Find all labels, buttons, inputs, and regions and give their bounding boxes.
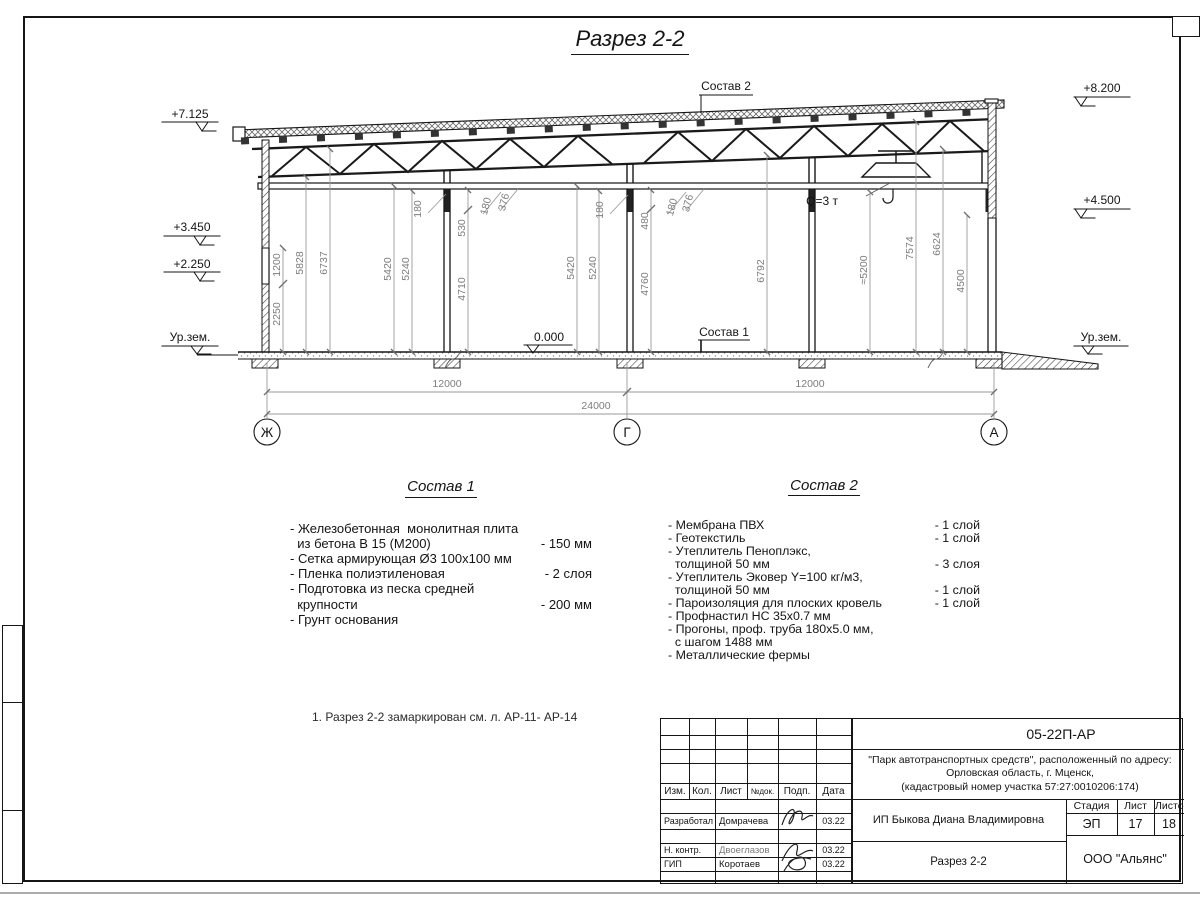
tb-organization: ООО "Альянс" — [1066, 835, 1184, 883]
tb-list-label: Лист — [1117, 799, 1154, 813]
svg-text:7574: 7574 — [904, 236, 916, 260]
tb-col-ndok: №док. — [747, 783, 778, 799]
drawing-sheet: Разрез 2-2 — [0, 0, 1200, 900]
material-item: - Геотекстиль - 1 слой — [668, 532, 980, 545]
elevation-mark: 0.000 — [524, 330, 572, 353]
svg-text:180: 180 — [478, 196, 494, 216]
tb-grid-line — [661, 799, 851, 800]
sostav1-callout: Состав 1 — [699, 325, 749, 339]
axis-label: Г — [623, 425, 631, 440]
tb-col-podp: Подп. — [778, 783, 816, 799]
svg-text:Ур.зем.: Ур.зем. — [170, 330, 211, 344]
tb-grid-line — [661, 749, 851, 750]
tb-project: "Парк автотранспортных средств", располо… — [856, 750, 1184, 798]
svg-text:530: 530 — [456, 219, 468, 237]
tb-stage-value: ЭП — [1066, 813, 1117, 835]
ramp — [1002, 352, 1098, 369]
elevation-mark: +8.200 — [1074, 81, 1130, 106]
svg-text:480: 480 — [639, 212, 651, 230]
svg-text:4760: 4760 — [639, 272, 651, 296]
sostav2-callout: Состав 2 — [701, 79, 751, 93]
svg-text:4500: 4500 — [955, 269, 967, 293]
signatures — [778, 801, 816, 883]
tb-role: Разработал — [664, 813, 715, 829]
tb-list-value: 17 — [1117, 813, 1154, 835]
crane-monorail: Q=3 т — [806, 151, 930, 208]
materials-list-2: Состав 2 - Мембрана ПВХ - 1 слой - Геоте… — [668, 478, 980, 662]
axis-label: А — [989, 425, 998, 440]
axis-bubbles: Ж Г А — [254, 419, 1007, 445]
floor-slab — [197, 350, 1098, 369]
material-item: - Пароизоляция для плоских кровель - 1 с… — [668, 597, 980, 610]
tb-stage-label: Стадия — [1066, 799, 1117, 813]
svg-text:+4.500: +4.500 — [1083, 193, 1120, 207]
svg-text:1200: 1200 — [271, 253, 283, 277]
svg-text:0.000: 0.000 — [534, 330, 564, 344]
svg-text:5240: 5240 — [587, 256, 599, 280]
span-dim: 12000 — [432, 378, 461, 390]
svg-text:180: 180 — [412, 200, 424, 218]
tb-name: Двоеглазов — [719, 843, 777, 857]
parapet-cap — [985, 99, 998, 103]
tb-grid-line — [661, 829, 851, 830]
svg-text:+3.450: +3.450 — [173, 220, 210, 234]
tb-col-list: Лист — [715, 783, 747, 799]
tb-grid-line — [661, 871, 851, 872]
tb-name: Коротаев — [719, 857, 777, 871]
material-item: - Мембрана ПВХ - 1 слой — [668, 519, 980, 532]
tb-date: 03.22 — [816, 813, 851, 829]
elevation-mark: +2.250 — [164, 257, 220, 281]
svg-text:≈5200: ≈5200 — [858, 255, 870, 284]
elevation-mark: +3.450 — [164, 220, 220, 245]
svg-text:6737: 6737 — [318, 251, 330, 275]
svg-text:180: 180 — [664, 197, 680, 217]
material-item: - Утеплитель Эковер Y=100 кг/м3, толщино… — [668, 571, 980, 597]
wall-right — [988, 103, 996, 218]
elevation-mark: +7.125 — [162, 107, 218, 131]
svg-text:+2.250: +2.250 — [173, 257, 210, 271]
tb-col-kol: Кол. — [689, 783, 715, 799]
material-item: - Профнастил НС 35х0.7 мм — [668, 610, 980, 623]
elevation-mark: Ур.зем. — [1074, 330, 1128, 354]
elevation-mark: +4.500 — [1074, 193, 1130, 218]
tb-name: Домрачева — [719, 813, 777, 829]
horizontal-dimensions: 12000 12000 24000 Ж Г А — [254, 362, 1007, 445]
title-block: Изм. Кол. Лист №док. Подп. Дата Разработ… — [660, 718, 1183, 884]
tb-drawing-name: Разрез 2-2 — [851, 841, 1066, 883]
material-item: - Подготовка из песка средней крупности … — [290, 581, 592, 611]
elevation-mark: Ур.зем. — [162, 330, 218, 354]
material-item: - Утеплитель Пеноплэкс, толщиной 50 мм -… — [668, 545, 980, 571]
svg-text:5420: 5420 — [565, 256, 577, 280]
svg-text:5420: 5420 — [382, 257, 394, 281]
tb-date: 03.22 — [816, 843, 851, 857]
total-dim: 24000 — [581, 400, 610, 412]
materials1-title: Состав 1 — [290, 478, 592, 498]
svg-text:+8.200: +8.200 — [1083, 81, 1120, 95]
tb-doc-code: 05-22П-АР — [938, 719, 1184, 749]
svg-text:6792: 6792 — [755, 259, 767, 283]
material-item: - Прогоны, проф. труба 180х5.0 мм, с шаг… — [668, 623, 980, 649]
tb-listov-label: Листов — [1155, 799, 1184, 813]
materials-list-1: Состав 1 - Железобетонная монолитная пли… — [290, 478, 592, 627]
material-item: - Железобетонная монолитная плита из бет… — [290, 521, 592, 551]
svg-text:Ур.зем.: Ур.зем. — [1081, 330, 1122, 344]
materials2-title: Состав 2 — [668, 478, 980, 496]
walls-columns — [262, 99, 998, 352]
crane-capacity-label: Q=3 т — [806, 194, 838, 208]
material-item: - Грунт основания — [290, 612, 592, 627]
tb-col-izm: Изм. — [661, 783, 689, 799]
tb-role: ГИП — [664, 857, 715, 871]
axis-label: Ж — [261, 425, 274, 440]
tb-col-data: Дата — [816, 783, 851, 799]
svg-text:5240: 5240 — [400, 257, 412, 281]
tb-grid-line — [715, 719, 716, 883]
signature — [782, 810, 813, 825]
material-item: - Пленка полиэтиленовая - 2 слоя — [290, 566, 592, 581]
tb-grid-line — [661, 735, 851, 736]
svg-text:2250: 2250 — [271, 302, 283, 326]
svg-text:5828: 5828 — [294, 251, 306, 275]
wall-left — [262, 140, 269, 248]
svg-text:4710: 4710 — [456, 277, 468, 301]
svg-text:6624: 6624 — [931, 232, 943, 256]
tb-listov-value: 18 — [1154, 813, 1184, 835]
svg-text:+7.125: +7.125 — [171, 107, 208, 121]
material-item: - Сетка армирующая Ø3 100х100 мм — [290, 551, 592, 566]
tb-grid-line — [661, 763, 851, 764]
signature — [782, 844, 813, 871]
tb-client: ИП Быкова Диана Владимировна — [851, 799, 1066, 841]
span-dim: 12000 — [795, 378, 824, 390]
tb-date: 03.22 — [816, 857, 851, 871]
tb-role: Н. контр. — [664, 843, 715, 857]
svg-text:180: 180 — [594, 201, 606, 219]
material-item: - Металлические фермы — [668, 649, 980, 662]
vertical-dimension-labels: 2250 1200 5828 6737 5420 5240 180 530 47… — [271, 192, 967, 326]
drawing-note: 1. Разрез 2-2 замаркирован см. л. АР-11-… — [312, 710, 577, 724]
